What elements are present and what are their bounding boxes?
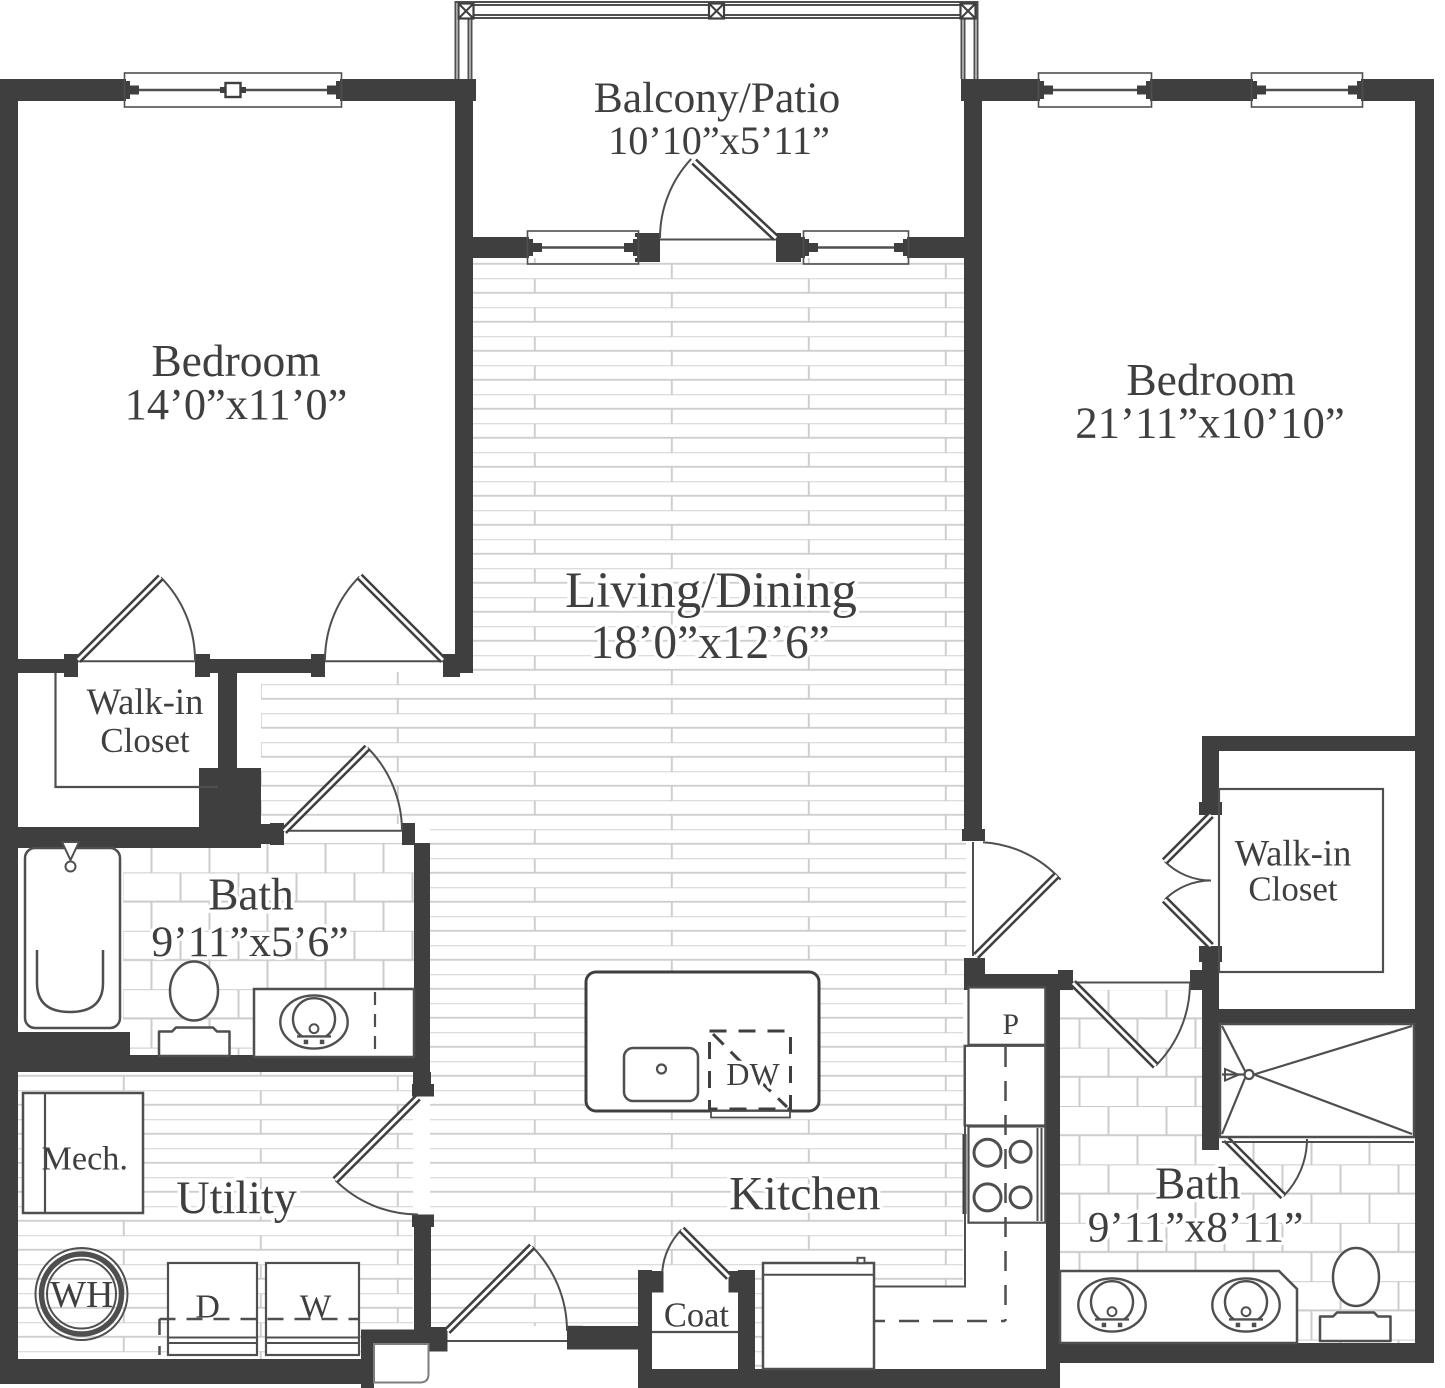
svg-text:Bath: Bath [1155, 1159, 1241, 1209]
svg-text:DW: DW [726, 1056, 780, 1092]
svg-text:D: D [195, 1288, 219, 1325]
svg-text:Mech.: Mech. [42, 1141, 128, 1178]
svg-text:Living/Dining: Living/Dining [565, 563, 857, 619]
svg-text:10’10”x5’11”: 10’10”x5’11” [608, 118, 830, 163]
svg-text:Kitchen: Kitchen [729, 1168, 880, 1221]
svg-text:WH: WH [50, 1274, 113, 1316]
svg-text:18’0”x12’6”: 18’0”x12’6” [590, 617, 830, 669]
svg-text:14’0”x11’0”: 14’0”x11’0” [125, 379, 348, 429]
svg-text:Closet: Closet [100, 721, 189, 760]
svg-text:9’11”x5’6”: 9’11”x5’6” [151, 918, 348, 966]
svg-text:W: W [300, 1288, 332, 1325]
svg-text:Closet: Closet [1248, 870, 1337, 909]
svg-text:Walk-in: Walk-in [87, 681, 204, 722]
svg-text:9’11”x8’11”: 9’11”x8’11” [1088, 1204, 1304, 1252]
svg-text:Walk-in: Walk-in [1235, 833, 1352, 874]
svg-text:Bath: Bath [208, 870, 294, 920]
svg-text:Utility: Utility [176, 1172, 297, 1223]
svg-text:21’11”x10’10”: 21’11”x10’10” [1075, 398, 1345, 448]
svg-text:Coat: Coat [664, 1296, 730, 1334]
svg-text:Balcony/Patio: Balcony/Patio [594, 74, 840, 122]
svg-text:P: P [1002, 1009, 1019, 1041]
